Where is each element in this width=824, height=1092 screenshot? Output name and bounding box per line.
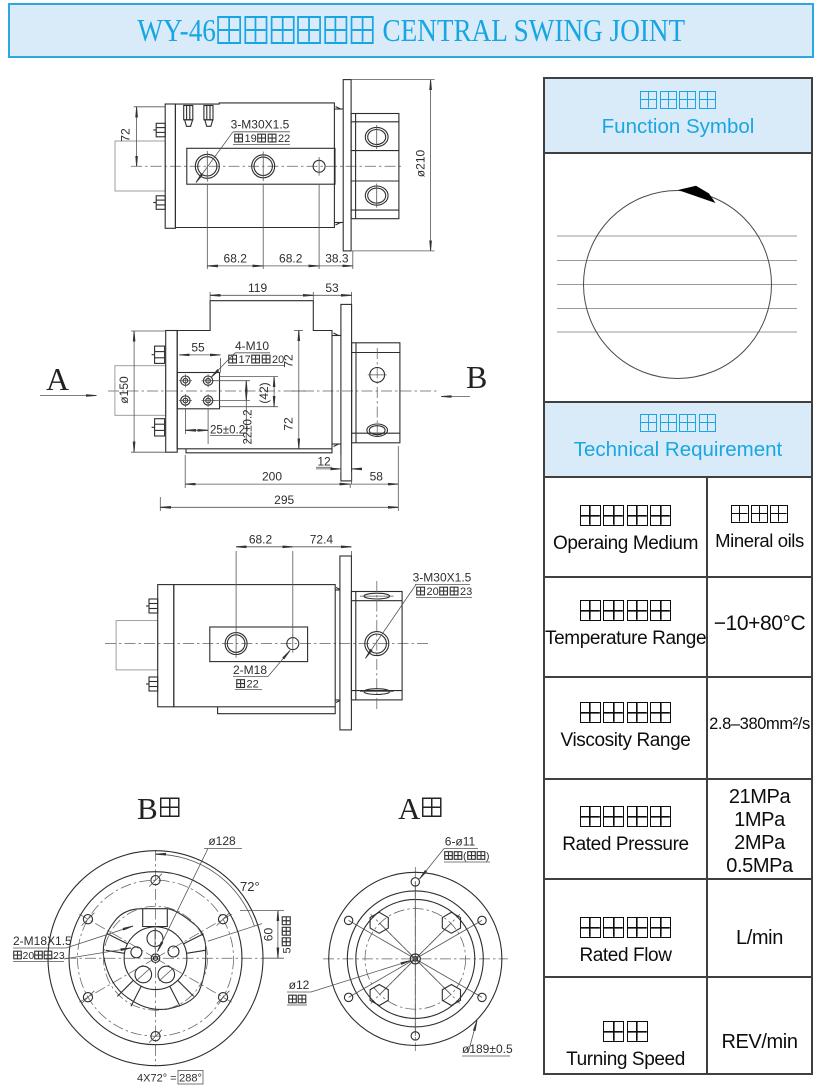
svg-text:72: 72 bbox=[282, 354, 296, 368]
svg-text:(: ( bbox=[463, 851, 467, 863]
svg-text:ø12: ø12 bbox=[289, 978, 310, 992]
svg-text:22: 22 bbox=[247, 679, 259, 691]
svg-text:17: 17 bbox=[239, 354, 251, 366]
svg-text:3-M30X1.5: 3-M30X1.5 bbox=[413, 571, 472, 585]
svg-text:20: 20 bbox=[427, 586, 439, 598]
svg-text:ø128: ø128 bbox=[208, 834, 236, 848]
svg-text:12: 12 bbox=[317, 455, 331, 469]
svg-text:68.2: 68.2 bbox=[224, 252, 248, 266]
svg-text:38.3: 38.3 bbox=[325, 252, 349, 266]
svg-text:): ) bbox=[486, 851, 490, 863]
svg-text:200: 200 bbox=[262, 470, 282, 484]
svg-text:B: B bbox=[137, 791, 158, 826]
svg-text:20: 20 bbox=[23, 950, 35, 962]
svg-text:ø210: ø210 bbox=[414, 150, 428, 178]
svg-text:22: 22 bbox=[278, 133, 290, 145]
svg-text:68.2: 68.2 bbox=[279, 252, 303, 266]
svg-text:6-ø11: 6-ø11 bbox=[445, 835, 476, 849]
svg-text:5: 5 bbox=[282, 947, 294, 953]
svg-text:ø150: ø150 bbox=[117, 376, 131, 404]
svg-text:55: 55 bbox=[191, 341, 205, 355]
svg-text:68.2: 68.2 bbox=[249, 532, 273, 546]
svg-text:4X72° =: 4X72° = bbox=[137, 1073, 177, 1085]
svg-text:4-M10: 4-M10 bbox=[235, 339, 269, 353]
svg-text:ø189±0.5: ø189±0.5 bbox=[462, 1042, 513, 1056]
svg-text:72.4: 72.4 bbox=[310, 532, 334, 546]
svg-text:58: 58 bbox=[370, 470, 384, 484]
svg-text:288°: 288° bbox=[179, 1073, 202, 1085]
svg-text:23: 23 bbox=[53, 950, 65, 962]
svg-text:23: 23 bbox=[460, 586, 472, 598]
svg-text:A: A bbox=[46, 361, 69, 397]
svg-text:295: 295 bbox=[274, 493, 294, 507]
svg-text:72: 72 bbox=[282, 417, 296, 431]
svg-text:B: B bbox=[466, 359, 487, 395]
svg-text:25±0.2: 25±0.2 bbox=[210, 425, 245, 437]
svg-text:2-M18: 2-M18 bbox=[233, 663, 267, 677]
svg-text:2-M18X1.5: 2-M18X1.5 bbox=[13, 934, 72, 948]
svg-text:22±0.2: 22±0.2 bbox=[243, 409, 255, 444]
svg-text:A: A bbox=[398, 791, 421, 826]
svg-text:(42): (42) bbox=[257, 382, 271, 403]
svg-text:72: 72 bbox=[119, 128, 133, 142]
svg-text:72°: 72° bbox=[240, 879, 260, 894]
svg-text:3-M30X1.5: 3-M30X1.5 bbox=[231, 118, 290, 132]
svg-text:53: 53 bbox=[325, 281, 339, 295]
svg-text:19: 19 bbox=[245, 133, 257, 145]
svg-text:60: 60 bbox=[262, 928, 276, 942]
svg-text:119: 119 bbox=[248, 281, 267, 295]
